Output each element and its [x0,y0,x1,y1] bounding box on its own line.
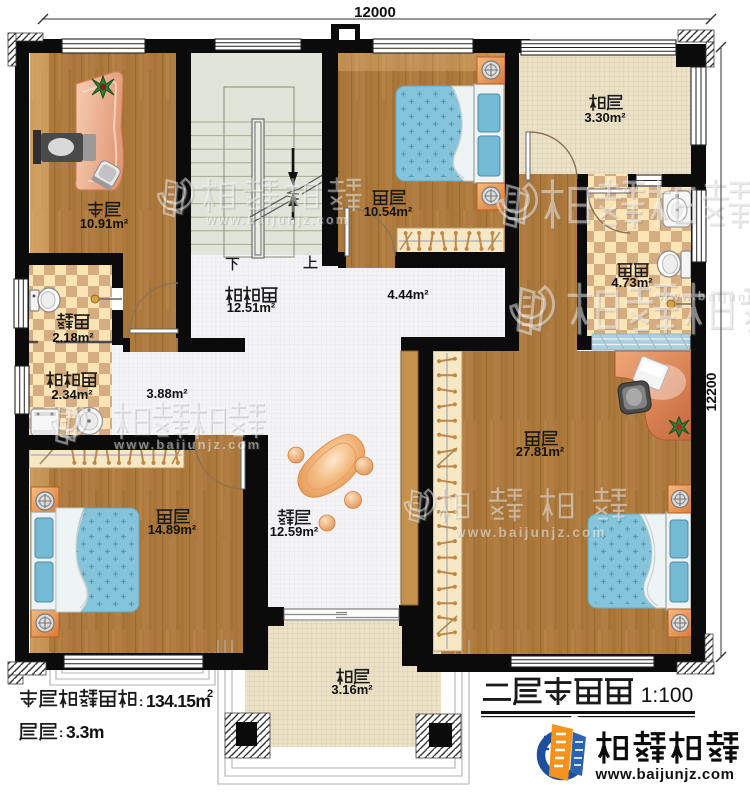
svg-text:www.baijunjz.com: www.baijunjz.com [113,437,261,452]
svg-text:27.81m²: 27.81m² [516,444,565,459]
svg-text:3.3m: 3.3m [66,722,104,742]
svg-text::: : [139,694,143,709]
svg-text:134.15m: 134.15m [146,691,210,711]
svg-text:10.54m²: 10.54m² [364,204,413,219]
svg-text:12.51m²: 12.51m² [227,300,276,315]
svg-text:12200: 12200 [703,372,719,411]
svg-text:4.73m²: 4.73m² [611,275,653,290]
svg-text:3.30m²: 3.30m² [584,110,626,125]
svg-text:www.baijunjz.com: www.baijunjz.com [594,766,734,783]
svg-text:12000: 12000 [354,4,396,21]
svg-text:10.91m²: 10.91m² [80,216,129,231]
svg-text:www.baijunjz.com: www.baijunjz.com [454,525,607,540]
svg-text:4.44m²: 4.44m² [387,287,429,302]
svg-text:12.59m²: 12.59m² [270,524,319,539]
svg-text:14.89m²: 14.89m² [148,522,197,537]
svg-text:2.18m²: 2.18m² [52,330,94,345]
svg-text:3.16m²: 3.16m² [331,682,373,697]
svg-text:2.34m²: 2.34m² [51,387,93,402]
svg-text:www.baijunjz.com: www.baijunjz.com [205,213,349,227]
svg-text:2: 2 [207,688,213,700]
svg-text:3.88m²: 3.88m² [146,386,188,401]
svg-text:1:100: 1:100 [641,684,694,707]
svg-text::: : [59,725,63,740]
